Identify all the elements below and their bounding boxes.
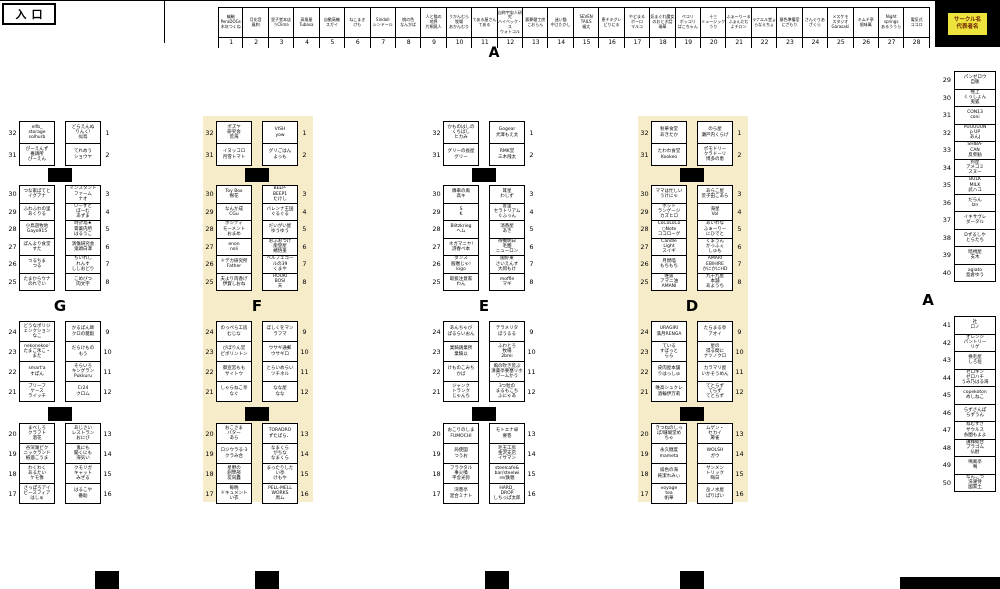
- booth-number: 21: [430, 381, 443, 402]
- booth-row: 31CON13 coni: [933, 106, 996, 125]
- booth-number: 5: [101, 220, 114, 239]
- booth-box: elfb_ storage solhurb: [19, 121, 55, 144]
- booth-box: HOUKI BOSI 天: [262, 273, 298, 292]
- booth-number: 28: [903, 38, 929, 48]
- booth-row: 22smart'a すぽんそらいろ キングラン Pukkuru11: [6, 361, 114, 382]
- booth-box: そらいろ キングラン Pukkuru: [65, 361, 101, 382]
- booth-number: 49: [933, 456, 954, 475]
- booth-box: つるちま つる: [19, 255, 55, 274]
- booth-row: 29パンゼロウ 自販: [933, 71, 996, 90]
- booth-box: 狗屋 アメコミ スヌー: [954, 159, 996, 178]
- booth-number: 13: [525, 423, 538, 444]
- booth-box: かものはしの くちばし ヒカみ: [443, 121, 479, 144]
- booth-number: 25: [6, 273, 19, 292]
- booth-number: 1: [101, 121, 114, 144]
- booth-box: ちいれし れんす ししおどり: [65, 255, 101, 274]
- booth-number: 18: [203, 463, 216, 484]
- section-letter-g: G: [6, 297, 114, 315]
- booth-row: 48講釋総合 プラゴム 仏酎: [933, 439, 996, 458]
- booth-box: たわわ食堂 Kookeo: [651, 143, 687, 166]
- booth-number: 15: [573, 38, 599, 48]
- booth-row: 44ゼロキン ゼロハチ うみ乃はる海: [933, 369, 996, 388]
- booth-row: 18わくわく あるたい ケモ像クモリガ キャット みぜる15: [6, 463, 114, 484]
- booth-block: 24どうなポリジ ェンクション なこかるぱん師 クロの雑穀923nekoneko…: [6, 321, 114, 402]
- booth-box: BEEP- BEEP1 たけし: [262, 185, 298, 204]
- booth-block: 30Toy Box 樹花BEEP- BEEP1 たけし329なんか成 CGuバレ…: [203, 185, 311, 291]
- booth-row: 27Candle Light スイギくまうん かっふぇ しゅも6: [638, 238, 746, 257]
- booth-row: 28CoCoLoCo ○Note ココローグあいわな ふぁーりー にひでと5: [638, 220, 746, 239]
- booth-row: 27ネガマニヤ! 詩春ベ本待機明日 毛圏 ニューロン6: [430, 238, 538, 257]
- booth-row: 18星野の 創學部 炭同轟まったりした い亭 けもや15: [203, 463, 311, 484]
- booth-box: インスタント ファーム ナオ: [65, 185, 101, 204]
- booth-number: 21: [6, 381, 19, 402]
- booth-number: 9: [298, 321, 311, 342]
- booth-row: 28ポジティ モーメント おまめだいがい屋 ゆうゆう5: [203, 220, 311, 239]
- pillar: [95, 571, 119, 589]
- booth-box: 换毛屋 しろ垣: [954, 351, 996, 370]
- booth-number: 17: [203, 483, 216, 504]
- booth-box: 星野の 創學部 炭同轟: [216, 463, 252, 484]
- booth-box: 隣車の風 高キ: [443, 185, 479, 204]
- booth-row: 38Dずるしや とらたち: [933, 229, 996, 248]
- booth-box: 猿色準備室 にざもり: [776, 7, 802, 38]
- booth-number: 7: [101, 255, 114, 274]
- booth-number: 26: [638, 255, 651, 274]
- booth-row: 22御宣宮もも サイトウとらいめらい ツチネル11: [203, 361, 311, 382]
- booth-box: CON13 coni: [954, 106, 996, 125]
- booth-box: どうなポリジ ェンクション なこ: [19, 321, 55, 342]
- booth-box: びぼりん堂 ピボリントン: [216, 341, 252, 362]
- booth-box: 取扱注意家 わん: [443, 273, 479, 292]
- booth-row: 25取扱注意家 わんmoffle マギ8: [430, 273, 538, 292]
- booth-number: 25: [638, 273, 651, 292]
- booth-box: 永久糖度 mameta: [651, 443, 687, 464]
- booth-row: 26ドデカ研究所 Fatherベルフェゴー ルの39 くまや7: [203, 255, 311, 274]
- booth-box: ロジウラる-3 クラみ合: [216, 443, 252, 464]
- booth-row: 31たわわ食堂 Kookeoポモドリー クラドーリ 博多の恵2: [638, 143, 746, 166]
- booth-number: 8: [733, 273, 746, 292]
- booth-row: 25唯遥 アマニ油 AMANI九十九屋 本舗 あようち8: [638, 273, 746, 292]
- booth-box: いーずと ぼーむ あずま: [65, 203, 101, 222]
- booth-box: 九十九屋 本舗 あようち: [697, 273, 733, 292]
- booth-row: 26月燃喵 もちもちAMARI EBIHIRE かにかにHD7: [638, 255, 746, 274]
- booth-number: 28: [430, 220, 443, 239]
- booth-box: 自動高機 スガイ: [319, 7, 345, 38]
- booth-number: 3: [525, 185, 538, 204]
- booth-number: 19: [430, 443, 443, 464]
- booth-number: 4: [525, 203, 538, 222]
- column-d: 32秋華食堂 あきたかのら屋 瀬戸内くらげ131たわわ食堂 Kookeoポモドリ…: [638, 1, 746, 589]
- booth-box: ポジティ モーメント おまめ: [216, 220, 252, 239]
- booth-row: 19ロジウラる-3 クラみ合なまくら がちな なまくら14: [203, 443, 311, 464]
- booth-number: 11: [298, 361, 311, 382]
- booth-number: 22: [638, 361, 651, 382]
- top-booth-cell: Night springs あるううら27: [879, 7, 904, 48]
- top-booth-cell: Sindoll シンドール7: [371, 7, 396, 48]
- booth-number: 32: [638, 121, 651, 144]
- booth-number: 18: [430, 463, 443, 484]
- booth-box: 局使図 つうお: [443, 443, 479, 464]
- booth-number: 17: [6, 483, 19, 504]
- booth-row: 20まべしろ クラフト 酒花あじさい レストラン おにび13: [6, 423, 114, 444]
- booth-number: 25: [430, 273, 443, 292]
- booth-box: しゃらねこ亭 なぐ: [216, 381, 252, 402]
- booth-box: ウサギ通郵 ウサギロ: [262, 341, 298, 362]
- booth-box: 唯遥 アマニ油 AMANI: [651, 273, 687, 292]
- right-booth-group: 29パンゼロウ 自販30極上 くっしょん 兎狐31CON13 coni32PUU…: [933, 71, 996, 282]
- booth-block: 32かものはしの くちばし ヒカみGogear 犬澤もえ太131グリーの長屋 グ…: [430, 121, 538, 166]
- booth-box: おこりのしま FUMOCHI: [443, 423, 479, 444]
- booth-number: 14: [101, 443, 114, 464]
- top-booth-cell: 桃の色 なんかぱ8: [396, 7, 421, 48]
- booth-box: copekoton めしねこ: [954, 386, 996, 405]
- booth-box: ふわふわの里 あくりる: [19, 203, 55, 222]
- booth-number: 2: [298, 143, 311, 166]
- booth-box: PELL-MELL WORKS 周ム: [262, 483, 298, 504]
- pillar: [680, 407, 704, 421]
- booth-number: 11: [101, 361, 114, 382]
- booth-box: テラメリタ ぼうるる: [489, 321, 525, 342]
- booth-number: 12: [101, 381, 114, 402]
- booth-number: 8: [298, 273, 311, 292]
- booth-row: 21ジャンク トランク じゃんち3つ粒の まるもこち ふにゃあ12: [430, 381, 538, 402]
- column-e: 32かものはしの くちばし ヒカみGogear 犬澤もえ太131グリーの長屋 グ…: [430, 1, 538, 589]
- booth-number: 29: [933, 71, 954, 90]
- booth-row: 47ねむすぎ ザウルス 糸圏もよよ: [933, 421, 996, 440]
- column-g: 32elfb_ storage solhurbどらえんぬ りんく! 似鳥131ぴ…: [6, 1, 114, 589]
- booth-row: 23ている すぼっと らら星の 得る間に ナツノクロ10: [638, 341, 746, 362]
- section-letter-e: E: [430, 297, 538, 315]
- booth-box: steelcafe& bar/steelwi re/鉄親: [489, 463, 525, 484]
- top-booth-cell: 迷い猫 中江たかし14: [548, 7, 573, 48]
- booth-box: RMK堂 三木飛太: [489, 143, 525, 166]
- booth-number: 15: [525, 463, 538, 484]
- pillar: [472, 407, 496, 421]
- booth-number: 35: [933, 176, 954, 195]
- booth-row: 32PUUUUUN p UP あんJ: [933, 124, 996, 143]
- booth-number: 23: [6, 341, 19, 362]
- booth-row: 17voyage tea 帆華岳ノ水屋 ぱりぱい16: [638, 483, 746, 504]
- booth-box: ゼロキン ゼロハチ うみ乃はる海: [954, 369, 996, 388]
- booth-number: 19: [203, 443, 216, 464]
- booth-box: モトエナ卓 要巻: [489, 423, 525, 444]
- top-booth-cell: 電気式 ココロ28: [904, 7, 929, 48]
- booth-number: 26: [6, 255, 19, 274]
- booth-box: なな屋 なな: [262, 381, 298, 402]
- booth-row: 23nekonekoo' たまご氷こ・ まただらけもの もう10: [6, 341, 114, 362]
- booth-box: 電気式 ココロ: [903, 7, 929, 38]
- right-booth-group: 41社 ロノ42オレンジ パントリー リゲ43换毛屋 しろ垣44ゼロキン ゼロハ…: [933, 316, 996, 492]
- booth-box: 小鳥遊牧地 Gayo915: [19, 220, 55, 239]
- booth-number: 13: [298, 423, 311, 444]
- booth-number: 29: [6, 203, 19, 222]
- booth-number: 31: [638, 143, 651, 166]
- booth-number: 7: [370, 38, 396, 48]
- booth-number: 32: [6, 121, 19, 144]
- booth-row: 50なんこつ 洗濯侍 國累土: [933, 474, 996, 493]
- booth-box: カラマリ屋 いかそうめん: [697, 361, 733, 382]
- booth-number: 19: [638, 443, 651, 464]
- booth-box: はるこや 番助: [65, 483, 101, 504]
- booth-block: 24あんちゃび ぱるらいおんテラメリタ ぼうるる923業騎鶏業所 業騎以ふわとろ…: [430, 321, 538, 402]
- booth-row: 45copekoton めしねこ: [933, 386, 996, 405]
- booth-number: 47: [933, 421, 954, 440]
- top-booth-cell: メスケモ スタジオ Garasaki25: [828, 7, 853, 48]
- booth-number: 9: [101, 321, 114, 342]
- booth-box: 桃の色 なんかぱ: [395, 7, 421, 38]
- booth-box: あんちゃび ぱるらいおん: [443, 321, 479, 342]
- booth-box: さんぐりあ ざくら: [802, 7, 828, 38]
- booth-box: あらこ屋 荒子田こあら: [697, 185, 733, 204]
- pillar: [485, 571, 509, 589]
- booth-number: 26: [853, 38, 879, 48]
- booth-number: 6: [101, 238, 114, 257]
- booth-box: のっぺら工房 むじな: [216, 321, 252, 342]
- booth-box: Candle Light スイギ: [651, 238, 687, 257]
- booth-number: 22: [6, 361, 19, 382]
- booth-row: 30隣車の風 高キ耳星 わしず3: [430, 185, 538, 204]
- booth-number: 1: [733, 121, 746, 144]
- booth-row: 29なんか成 CGuバレンナ王国 ぐるぐる4: [203, 203, 311, 222]
- booth-number: 17: [430, 483, 443, 504]
- booth-box: SEVEN TAILS 福太: [573, 7, 599, 38]
- booth-box: 夫より肉香げ 伊賀しおね: [216, 273, 252, 292]
- booth-number: 12: [733, 381, 746, 402]
- booth-number: 37: [933, 211, 954, 230]
- booth-box: サンメン トリック 晦日: [697, 463, 733, 484]
- booth-box: ラナエル堂ょ らなえちょ: [751, 7, 777, 38]
- booth-block: 24のっぺら工房 むじなぼしくをマン ラフマ923びぼりん堂 ピボリントンウサギ…: [203, 321, 311, 402]
- booth-box: わくわく あるたい ケモ像: [19, 463, 55, 484]
- legend-label: サークル名 代表者名: [948, 13, 987, 35]
- booth-row: 32ポズヤ 研究会 荒海VISH yow1: [203, 121, 311, 144]
- booth-box: ねむすぎ ザウルス 糸圏もよよ: [954, 421, 996, 440]
- booth-number: 40: [933, 264, 954, 283]
- entrance-wall-line: [164, 1, 165, 43]
- column-f: 32ポズヤ 研究会 荒海VISH yow131イヌッコロ 月雪トマトグリごはん …: [203, 1, 311, 589]
- booth-number: 5: [525, 220, 538, 239]
- booth-number: 25: [203, 273, 216, 292]
- booth-row: 20きつねのしっ ぽ/珊瑚堂め ちゃムゲン・ セカイ 麻雀13: [638, 423, 746, 444]
- booth-number: 32: [203, 121, 216, 144]
- booth-number: 23: [776, 38, 802, 48]
- booth-number: 32: [430, 121, 443, 144]
- booth-number: 4: [733, 203, 746, 222]
- booth-number: 10: [525, 341, 538, 362]
- booth-box: moffle マギ: [489, 273, 525, 292]
- booth-number: 8: [395, 38, 421, 48]
- booth-box: ダンス 服暦じゃ! kigo: [443, 255, 479, 274]
- top-booth-cell: ラナエル堂ょ らなえちょ22: [752, 7, 777, 48]
- booth-number: 39: [933, 246, 954, 265]
- booth-number: 8: [101, 273, 114, 292]
- booth-box: BULK MILK 武ハコ: [954, 176, 996, 195]
- booth-box: キムチ亭 個味萬: [853, 7, 879, 38]
- booth-row: 26つるちま つるちいれし れんす ししおどり7: [6, 255, 114, 274]
- booth-number: 28: [6, 220, 19, 239]
- booth-number: 26: [430, 255, 443, 274]
- booth-box: どらえんぬ りんく! 似鳥: [65, 121, 101, 144]
- booth-box: SHIBA- CAN 反柴勧: [954, 141, 996, 160]
- booth-box: ねこまき けも: [344, 7, 370, 38]
- booth-number: 6: [525, 238, 538, 257]
- booth-box: あじさい レストラン おにび: [65, 423, 101, 444]
- booth-number: 17: [638, 483, 651, 504]
- booth-box: たまからウナ のれでい: [19, 273, 55, 292]
- booth-number: 4: [298, 203, 311, 222]
- section-letter-a-right: A: [916, 291, 940, 309]
- booth-number: 14: [525, 443, 538, 464]
- booth-box: おこさま バター あら: [216, 423, 252, 444]
- booth-row: 19永久糖度 mametaWOLSH ガウ14: [638, 443, 746, 464]
- booth-number: 10: [101, 341, 114, 362]
- pillar: [255, 571, 279, 589]
- booth-number: 6: [344, 38, 370, 48]
- booth-number: 24: [638, 321, 651, 342]
- booth-row: 31イヌッコロ 月雪トマトグリごはん よっも2: [203, 143, 311, 166]
- booth-box: オレンジ パントリー リゲ: [954, 334, 996, 353]
- booth-box: けものこみち かば: [443, 361, 479, 382]
- booth-box: 唯高シュクレ 酒輪伊万莉: [651, 381, 687, 402]
- booth-number: 12: [298, 381, 311, 402]
- booth-number: 24: [6, 321, 19, 342]
- booth-row: 30極上 くっしょん 兎狐: [933, 89, 996, 108]
- booth-number: 6: [733, 238, 746, 257]
- top-booth-cell: キムチ亭 個味萬26: [854, 7, 879, 48]
- booth-box: 待機明日 毛圏 ニューロン: [489, 238, 525, 257]
- booth-box: S K: [443, 203, 479, 222]
- booth-box: 鳴風亭 鳴: [954, 456, 996, 475]
- booth-box: 耳星 わしず: [489, 185, 525, 204]
- booth-number: 30: [6, 185, 19, 204]
- booth-number: 16: [598, 38, 624, 48]
- booth-number: 31: [203, 143, 216, 166]
- booth-number: 50: [933, 474, 954, 493]
- booth-number: 2: [733, 143, 746, 166]
- booth-number: 23: [203, 341, 216, 362]
- booth-number: 20: [430, 423, 443, 444]
- booth-row: 28Blitzkrieg ヘム消香屋 あき5: [430, 220, 538, 239]
- booth-number: 29: [203, 203, 216, 222]
- booth-box: ホット ランゲージ カズヒロ: [651, 203, 687, 222]
- booth-row: 20おこりのしま FUMOCHIモトエナ卓 要巻13: [430, 423, 538, 444]
- top-booth-cell: ねこまき けも6: [345, 7, 370, 48]
- booth-box: 3つ粒の まるもこち ふにゃあ: [489, 381, 525, 402]
- booth-row: 24どうなポリジ ェンクション なこかるぱん師 クロの雑穀9: [6, 321, 114, 342]
- booth-box: あいわな ふぁーりー にひでと: [697, 220, 733, 239]
- booth-box: 講釋総合 プラゴム 仏酎: [954, 439, 996, 458]
- booth-box: Toy Box 樹花: [216, 185, 252, 204]
- booth-box: 恵チキグレ どりにる: [598, 7, 624, 38]
- booth-box: てとらず てらず てとらず: [697, 381, 733, 402]
- booth-row: 32秋華食堂 あきたかのら屋 瀬戸内くらげ1: [638, 121, 746, 144]
- booth-box: ブリーフ ケース ライッチ: [19, 381, 55, 402]
- booth-box: ぼんより食堂 すた: [19, 238, 55, 257]
- booth-number: 9: [525, 321, 538, 342]
- booth-number: 22: [203, 361, 216, 382]
- booth-box: 毛玉工房 金沢支店 イサマン: [489, 443, 525, 464]
- booth-number: 2: [101, 143, 114, 166]
- booth-number: 11: [525, 361, 538, 382]
- booth-box: 海星 Vol: [697, 203, 733, 222]
- booth-box: 秋華食堂 あきたか: [651, 121, 687, 144]
- booth-box: パンゼロウ 自販: [954, 71, 996, 90]
- booth-number: 15: [101, 463, 114, 484]
- booth-number: 30: [430, 185, 443, 204]
- booth-number: 23: [638, 341, 651, 362]
- booth-row: 23びぼりん堂 ピボリントンウサギ通郵 ウサギロ10: [203, 341, 311, 362]
- booth-box: enon noli: [216, 238, 252, 257]
- booth-box: CoCoLoCo ○Note ココローグ: [651, 220, 687, 239]
- booth-number: 7: [298, 255, 311, 274]
- booth-box: 時計塔★ 膏薬内所 はるうこ: [65, 220, 101, 239]
- booth-box: ジャンク トランク じゃんち: [443, 381, 479, 402]
- booth-block: 32秋華食堂 あきたかのら屋 瀬戸内くらげ131たわわ食堂 Kookeoポモドリ…: [638, 121, 746, 166]
- booth-box: ポモドリー クラドーリ 博多の恵: [697, 143, 733, 166]
- booth-row: 28小鳥遊牧地 Gayo915時計塔★ 膏薬内所 はるうこ5: [6, 220, 114, 239]
- booth-row: 31ぴーえんず 養鶏所 ぴーえんてれめう ショウヤ2: [6, 143, 114, 166]
- booth-box: つな家ぽてと イグアナ: [19, 185, 55, 204]
- booth-box: nekonekoo' たまご氷こ・ また: [19, 341, 55, 362]
- booth-box: 月燃喵 もちもち: [651, 255, 687, 274]
- booth-row: 17さっぽろアイ ビースフィア はしゅはるこや 番助16: [6, 483, 114, 504]
- booth-number: 22: [430, 361, 443, 382]
- top-booth-cell: さんぐりあ ざくら24: [803, 7, 828, 48]
- booth-number: 14: [733, 443, 746, 464]
- booth-number: 20: [203, 423, 216, 444]
- booth-row: 26ダンス 服暦じゃ! kigo闇好東 さいえんす 大岡もけ7: [430, 255, 538, 274]
- booth-number: 13: [733, 423, 746, 444]
- booth-box: たらまる亭 アオイ: [697, 321, 733, 342]
- booth-number: 30: [638, 185, 651, 204]
- booth-box: Night springs あるううら: [878, 7, 904, 38]
- booth-box: 鬼にも 聞くにも 海気い: [65, 443, 101, 464]
- booth-box: ぴーえんず 養鶏所 ぴーえん: [19, 143, 55, 166]
- booth-number: 11: [733, 361, 746, 382]
- booth-box: グリごはん よっも: [262, 143, 298, 166]
- booth-box: 業騎鶏業所 業騎以: [443, 341, 479, 362]
- booth-row: 29S K客里 セラトリアム ぐふっん4: [430, 203, 538, 222]
- booth-number: 12: [525, 381, 538, 402]
- pillar: [680, 168, 704, 182]
- booth-box: VISH yow: [262, 121, 298, 144]
- booth-box: こめびつ 肉文字: [65, 273, 101, 292]
- booth-row: 33SHIBA- CAN 反柴勧: [933, 141, 996, 160]
- booth-number: 27: [430, 238, 443, 257]
- booth-row: 18緋色の海 純潔れみぃサンメン トリック 晦日15: [638, 463, 746, 484]
- booth-row: 37イキサヴレ ダータル: [933, 211, 996, 230]
- booth-row: 27ぼんより食堂 すた演傷研究会 鬼頭白澤6: [6, 238, 114, 257]
- booth-box: まべしろ クラフト 酒花: [19, 423, 55, 444]
- booth-number: 33: [933, 141, 954, 160]
- booth-number: 2: [525, 143, 538, 166]
- top-booth-cell: 自動高機 スガイ5: [320, 7, 345, 48]
- booth-number: 27: [878, 38, 904, 48]
- booth-box: だいがい屋 ゆうゆう: [262, 220, 298, 239]
- booth-row: 25たまからウナ のれでいこめびつ 肉文字8: [6, 273, 114, 292]
- booth-block: 30つな家ぽてと イグアナインスタント ファーム ナオ329ふわふわの里 あくり…: [6, 185, 114, 291]
- booth-number: 23: [430, 341, 443, 362]
- booth-box: Dずるしや とらたち: [954, 229, 996, 248]
- booth-number: 31: [6, 143, 19, 166]
- booth-number: 31: [430, 143, 443, 166]
- booth-number: 16: [101, 483, 114, 504]
- booth-number: 42: [933, 334, 954, 353]
- booth-row: 22けものこみち かば風の吹き荒ぶ 清薬亭要塞リホ ワームかう11: [430, 361, 538, 382]
- booth-row: 24あんちゃび ぱるらいおんテラメリタ ぼうるる9: [430, 321, 538, 342]
- booth-box: 皮肉屋本舗 りはっしゅ: [651, 361, 687, 382]
- booth-box: かるぱん師 クロの雑穀: [65, 321, 101, 342]
